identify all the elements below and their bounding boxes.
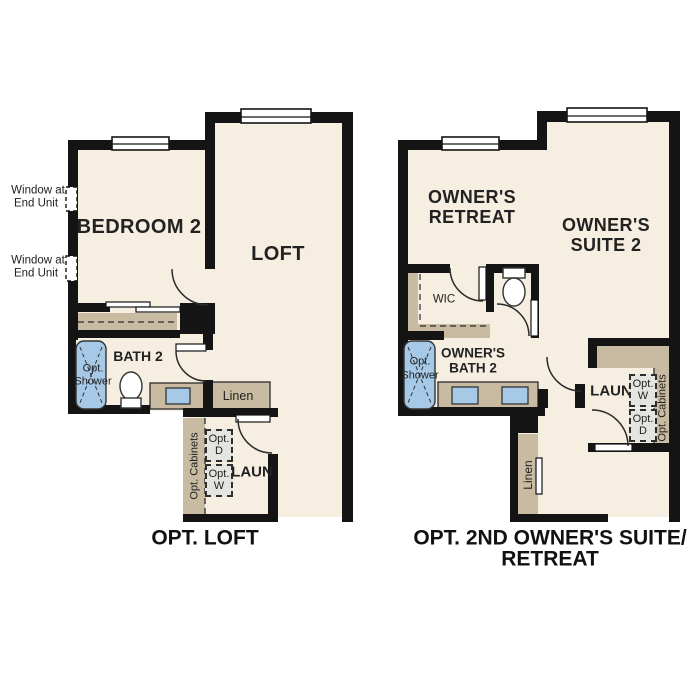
floorplan-page: Window at End Unit Window at End Unit BE… [0,0,687,687]
room-label-owners-bath2-line1: OWNER'S [441,346,505,360]
wic-label: WIC [433,294,455,306]
opt-shower-right-label-line1: Opt. [410,357,431,368]
window-note-2-line2: End Unit [14,268,58,280]
right-plan [398,108,680,522]
opt-cabinets-right-label: Opt. Cabinets [658,374,669,441]
linen-right-label: Linen [522,460,534,489]
opt-washer-right-label-line1: Opt. [633,379,654,391]
opt-shower-label-line1: Opt. [83,364,104,375]
opt-washer-right-box: Opt. W [629,374,657,407]
room-label-owners-suite2-line1: OWNER'S [562,216,650,234]
caption-opt-loft: OPT. LOFT [151,528,258,549]
room-label-bath2: BATH 2 [113,349,163,363]
room-label-bedroom2: BEDROOM 2 [77,217,202,237]
opt-dryer-right-label-line2: D [639,426,647,438]
window-note-2-line1: Window at [11,255,65,267]
room-label-laun-right: LAUN [590,384,632,399]
floorplan-graphics [0,0,687,687]
opt-shower-right-label-line2: Shower [401,371,438,382]
room-label-owners-bath2-line2: BATH 2 [449,361,497,375]
opt-dryer-label-line1: Opt. [209,434,230,446]
caption-opt-2nd-owners-suite-line1: OPT. 2ND OWNER'S SUITE/ [413,528,686,549]
opt-washer-label-line2: W [214,481,224,493]
opt-dryer-box: Opt. D [205,429,233,462]
room-label-owners-retreat-line2: RETREAT [429,208,515,226]
room-label-laun-left: LAUN [231,465,273,480]
opt-cabinets-label: Opt. Cabinets [190,432,201,499]
opt-washer-right-label-line2: W [638,391,648,403]
room-label-owners-retreat-line1: OWNER'S [428,188,516,206]
opt-shower-label-line2: Shower [74,377,111,388]
window-note-1-line1: Window at [11,185,65,197]
opt-dryer-right-label-line1: Opt. [633,414,654,426]
linen-label: Linen [223,390,254,403]
caption-opt-2nd-owners-suite-line2: RETREAT [501,549,599,570]
window-note-1-line2: End Unit [14,198,58,210]
room-label-owners-suite2-line2: SUITE 2 [571,236,642,254]
opt-washer-box: Opt. W [205,464,233,497]
room-label-loft: LOFT [251,244,305,264]
opt-dryer-label-line2: D [215,446,223,458]
opt-dryer-right-box: Opt. D [629,409,657,442]
opt-washer-label-line1: Opt. [209,469,230,481]
